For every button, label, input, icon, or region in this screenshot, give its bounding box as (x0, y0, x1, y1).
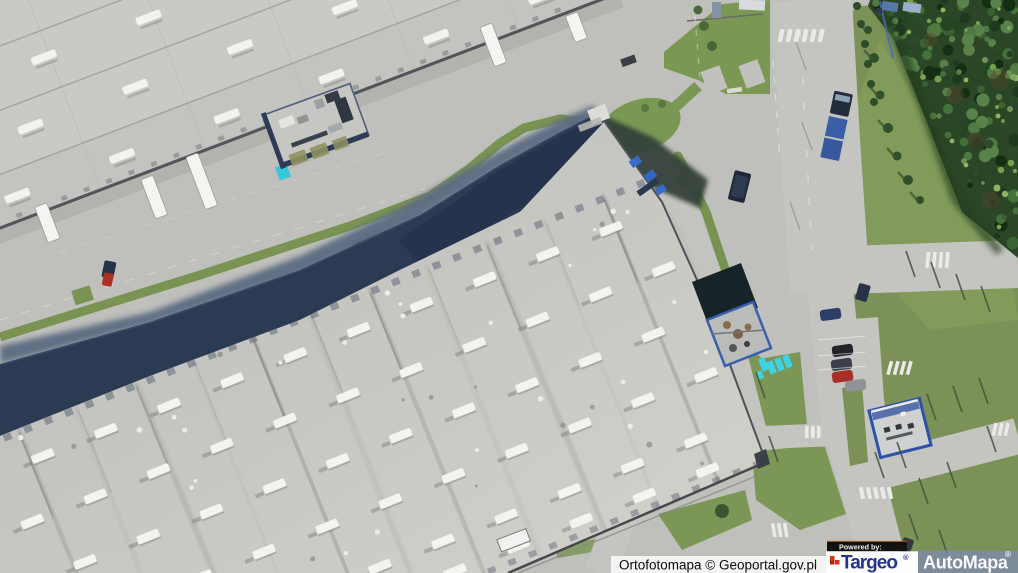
svg-text:Powered by:: Powered by: (839, 543, 882, 552)
svg-text:®: ® (903, 553, 909, 562)
svg-text:®: ® (1005, 550, 1011, 559)
svg-text:Ortofotomapa © Geoportal.gov.p: Ortofotomapa © Geoportal.gov.pl (619, 558, 817, 573)
svg-text:Targeo: Targeo (841, 553, 897, 573)
svg-text:AutoMapa: AutoMapa (923, 553, 1009, 573)
